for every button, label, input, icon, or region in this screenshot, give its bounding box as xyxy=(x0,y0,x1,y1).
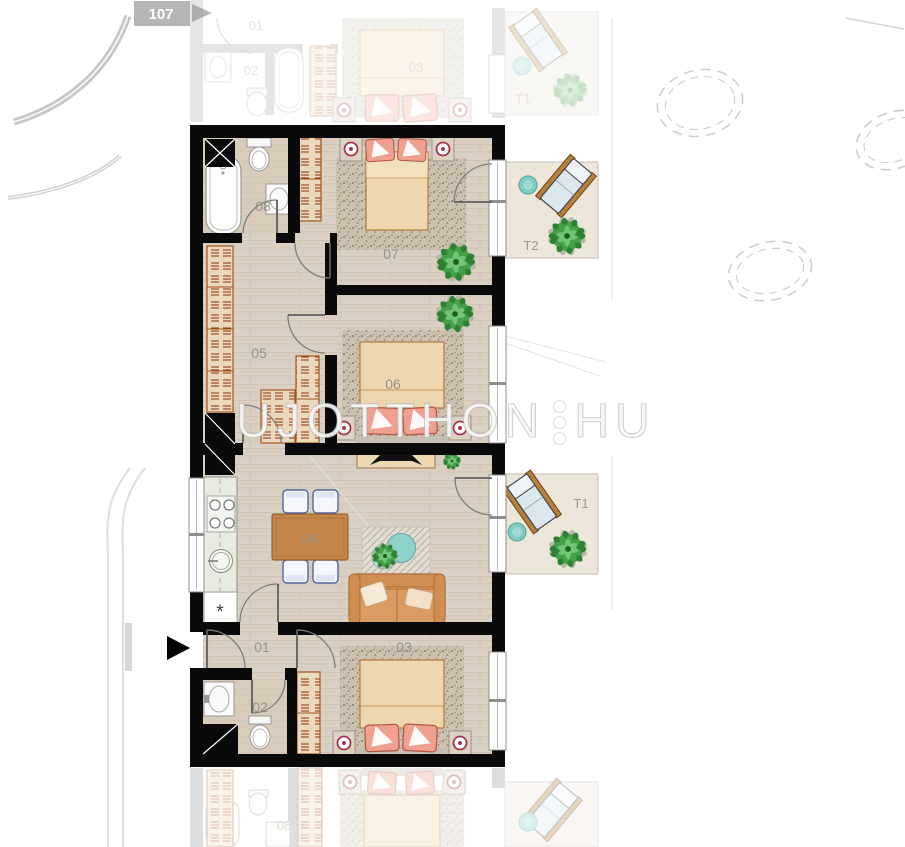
washing-machine-symbol: * xyxy=(216,602,224,623)
faded-lower-apartment: 08 xyxy=(190,768,598,847)
entrance-arrow-icon xyxy=(167,636,190,660)
room-label-04: 04 xyxy=(302,530,318,546)
bed-03-pillow-left xyxy=(365,724,400,752)
bathtub xyxy=(206,156,241,234)
site-lines-terrace-corner xyxy=(505,336,606,376)
toilet-02-tank xyxy=(249,716,271,724)
main-apartment: T2 T1 08 xyxy=(167,125,598,767)
floorplan-svg: 107 01 02 03 T1 xyxy=(0,0,905,847)
room-label-05: 05 xyxy=(251,345,267,361)
room-label-06: 06 xyxy=(385,376,401,392)
bed-07-nightstand-right xyxy=(432,137,454,161)
bed-03-pillow-right xyxy=(403,724,438,752)
faded-lower-room-label-08: 08 xyxy=(277,818,291,833)
site-line-topright xyxy=(846,18,904,29)
room-label-03: 03 xyxy=(396,639,412,655)
sofa xyxy=(349,574,445,624)
bed-03-nightstand-left xyxy=(333,731,355,755)
window-bedroom-06 xyxy=(489,326,506,443)
faded-upper-room-label-02: 02 xyxy=(244,63,258,78)
bed-06-pillow-right xyxy=(403,407,438,435)
window-bedroom-03 xyxy=(489,652,506,750)
faded-upper-room-label-01: 01 xyxy=(249,18,263,33)
window-door-terrace-t1 xyxy=(489,475,506,572)
room-label-01: 01 xyxy=(254,639,270,655)
bed-07-pillow-right xyxy=(397,138,426,161)
site-curve-thin-split xyxy=(8,156,120,198)
room-01-entry: 01 xyxy=(254,639,270,655)
bathtub-faucet-icon xyxy=(222,172,225,175)
site-corridor-door xyxy=(125,623,132,671)
faded-upper-apartment: 01 02 03 T1 xyxy=(190,0,598,122)
shaft-middle xyxy=(205,413,235,475)
site-curve-thick-split xyxy=(14,16,128,122)
terrace-t2: T2 xyxy=(505,154,598,258)
bed-06-nightstand-right xyxy=(449,416,471,440)
terrace-label-t1: T1 xyxy=(573,496,588,511)
kitchen-counter xyxy=(204,477,237,593)
terrace-t1-table xyxy=(508,523,526,541)
terrace-t2-table xyxy=(519,176,537,194)
window-kitchen xyxy=(189,478,204,592)
terrace-label-t2: T2 xyxy=(523,238,538,253)
bed-06-headboard xyxy=(356,436,448,443)
faded-upper-terrace-label-t1: T1 xyxy=(515,91,530,106)
site-tree-ellipses xyxy=(651,62,905,308)
bed-06-pillow-left xyxy=(365,407,400,435)
unit-tag-label: 107 xyxy=(148,6,173,23)
room-label-07: 07 xyxy=(383,246,399,262)
floorplan-canvas: 107 01 02 03 T1 xyxy=(0,0,905,847)
bed-07-pillow-left xyxy=(365,138,394,162)
bed-03-nightstand-right xyxy=(449,731,471,755)
toilet-tank xyxy=(247,138,271,147)
site-curve-thin xyxy=(8,156,120,198)
site-curve-thick xyxy=(14,16,128,122)
faded-upper-room-label-03: 03 xyxy=(409,60,423,75)
terrace-t1: T1 xyxy=(503,470,598,574)
washbasin-02-faucet-icon xyxy=(204,695,209,703)
bed-06 xyxy=(360,342,444,408)
wardrobe-05-south xyxy=(261,390,295,443)
bed-07-nightstand-left xyxy=(340,137,362,161)
window-door-terrace-t2 xyxy=(489,160,506,256)
bed-03 xyxy=(360,660,444,728)
